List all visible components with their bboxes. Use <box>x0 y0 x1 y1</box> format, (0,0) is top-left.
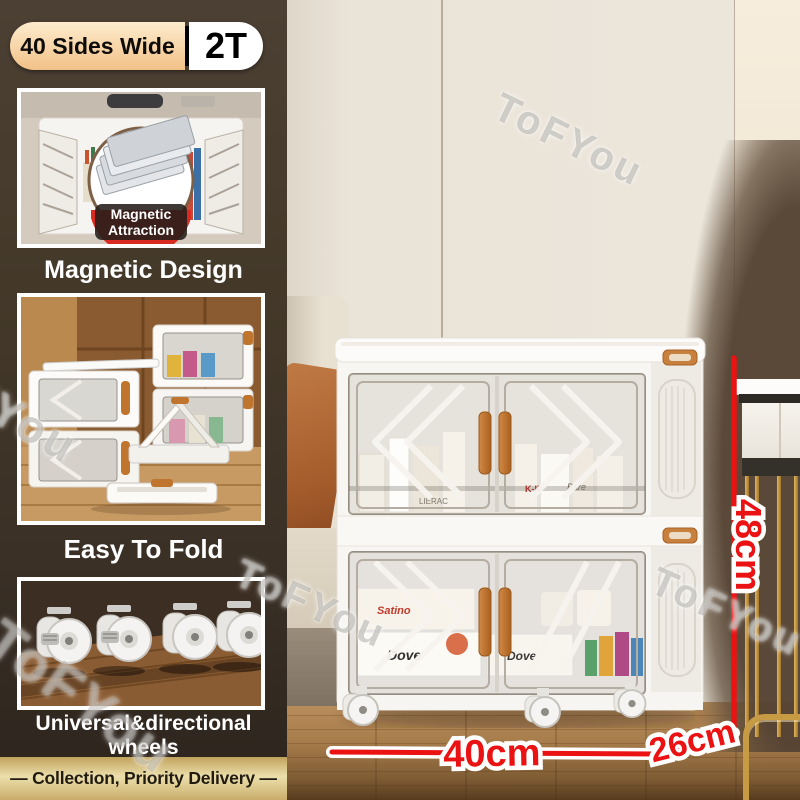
badge-size-text: 40 Sides Wide <box>10 22 185 70</box>
flat-folded-box <box>107 479 217 503</box>
inset-label-line1: Magnetic <box>111 206 172 222</box>
cabinet-mid-band <box>337 516 703 546</box>
table-drawers <box>742 403 800 458</box>
size-badge: 40 Sides Wide 2T <box>10 22 263 70</box>
table-leg <box>794 476 798 737</box>
cabinet-lid <box>335 338 705 362</box>
table-leg <box>777 476 781 737</box>
inset-label-line2: Attraction <box>108 222 174 238</box>
product-label: LIERAC <box>419 497 448 506</box>
table-underside <box>739 394 800 403</box>
badge-tier-text: 2T <box>189 22 263 70</box>
feature-image-magnetic: Magnetic Attraction <box>17 88 265 248</box>
drawer-divider <box>779 403 781 458</box>
table-top <box>734 379 800 394</box>
product-listing-image: LIERAC K-II Bare <box>0 0 800 800</box>
storage-cabinet-photo: LIERAC K-II Bare <box>335 336 715 728</box>
feature-caption: Magnetic Design <box>0 256 287 284</box>
table-leg-arch <box>743 714 800 800</box>
table-lower-band <box>742 458 800 476</box>
